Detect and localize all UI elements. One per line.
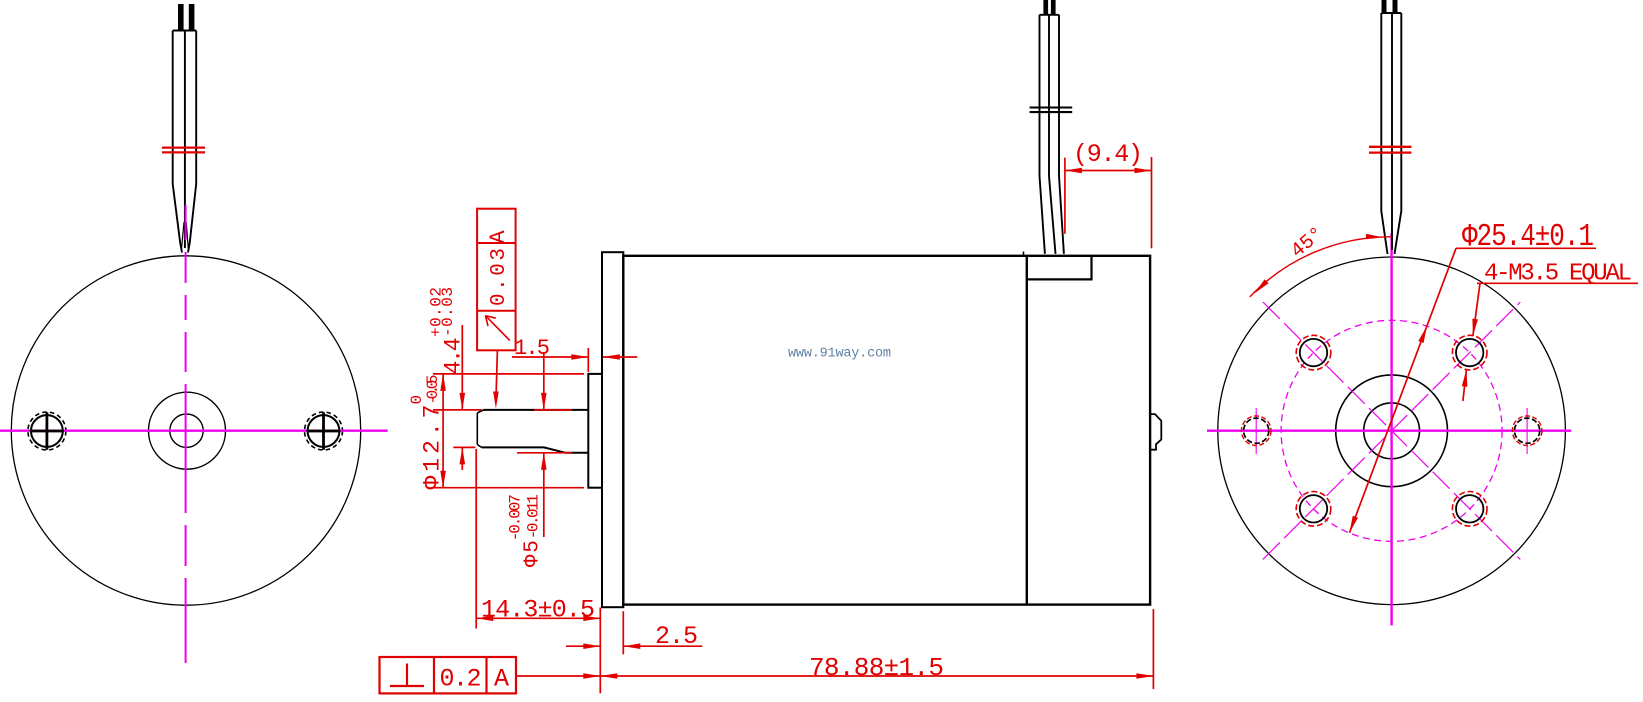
- svg-text:78.88±1.5: 78.88±1.5: [809, 653, 944, 683]
- svg-text:4-M3.5 EQUAL: 4-M3.5 EQUAL: [1484, 261, 1632, 288]
- svg-text:4.4: 4.4: [441, 337, 467, 374]
- svg-text:-0.011: -0.011: [525, 494, 543, 539]
- svg-text:A: A: [494, 665, 509, 694]
- svg-text:0: 0: [408, 395, 426, 405]
- svg-text:14.3±0.5: 14.3±0.5: [481, 596, 595, 625]
- svg-text:-0.007: -0.007: [507, 494, 525, 541]
- svg-text:0.2: 0.2: [440, 665, 482, 694]
- svg-text:1.5: 1.5: [514, 336, 550, 361]
- svg-text:Φ25.4±0.1: Φ25.4±0.1: [1462, 219, 1594, 255]
- svg-text:+0.02: +0.02: [428, 287, 446, 337]
- svg-text:2.5: 2.5: [655, 622, 698, 651]
- svg-text:A: A: [486, 230, 511, 244]
- svg-text:www.91way.com: www.91way.com: [788, 347, 891, 362]
- svg-text:-0.05: -0.05: [424, 375, 442, 405]
- svg-text:Φ5: Φ5: [522, 540, 545, 567]
- svg-text:(9.4): (9.4): [1073, 140, 1143, 169]
